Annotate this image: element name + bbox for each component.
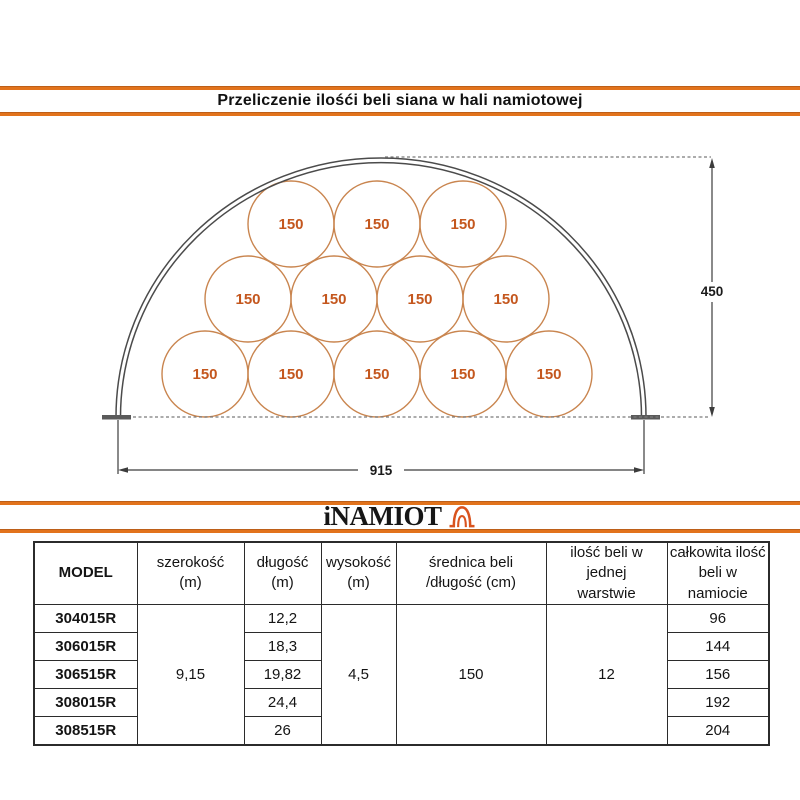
model-cell: 306515R: [34, 660, 137, 688]
header-model: MODEL: [34, 542, 137, 604]
total-bales-cell: 96: [667, 604, 769, 632]
height-dimension-label: 450: [701, 284, 724, 299]
header-length: długość(m): [244, 542, 321, 604]
length-cell: 24,4: [244, 688, 321, 716]
title-divider-bottom: [0, 112, 800, 116]
bale-label: 150: [321, 291, 346, 308]
bales-per-layer-cell: 12: [546, 604, 667, 745]
bale-label: 150: [235, 291, 260, 308]
dashed-reference-lines: [133, 157, 711, 417]
total-bales-cell: 204: [667, 716, 769, 745]
bale-label: 150: [407, 291, 432, 308]
title-divider-top: [0, 86, 800, 90]
length-cell: 12,2: [244, 604, 321, 632]
bale-label: 150: [364, 366, 389, 383]
logo-divider-bottom: [0, 529, 800, 533]
header-width: szerokość(m): [137, 542, 244, 604]
page: Przeliczenie ilośći beli siana w hali na…: [0, 0, 800, 800]
header-height: wysokość(m): [321, 542, 396, 604]
length-cell: 26: [244, 716, 321, 745]
model-spec-table: MODEL szerokość(m) długość(m) wysokość(m…: [33, 541, 770, 746]
bale-label: 150: [493, 291, 518, 308]
bale-label: 150: [278, 366, 303, 383]
table-row: 304015R 9,15 12,2 4,5 150 12 96: [34, 604, 769, 632]
model-cell: 306015R: [34, 632, 137, 660]
bale-label: 150: [192, 366, 217, 383]
total-bales-cell: 156: [667, 660, 769, 688]
bale-label: 150: [450, 216, 475, 233]
width-cell: 9,15: [137, 604, 244, 745]
left-foot-plate: [102, 415, 131, 420]
header-bale-diameter: średnica beli/długość (cm): [396, 542, 546, 604]
total-bales-cell: 144: [667, 632, 769, 660]
bale-label: 150: [278, 216, 303, 233]
page-title: Przeliczenie ilośći beli siana w hali na…: [0, 92, 800, 110]
model-cell: 304015R: [34, 604, 137, 632]
bale-label: 150: [536, 366, 561, 383]
model-cell: 308515R: [34, 716, 137, 745]
brand-logo-text: iNAMIOT: [324, 503, 442, 530]
height-cell: 4,5: [321, 604, 396, 745]
brand-logo: iNAMIOT: [0, 503, 800, 529]
model-cell: 308015R: [34, 688, 137, 716]
bale-diameter-cell: 150: [396, 604, 546, 745]
bale-label: 150: [450, 366, 475, 383]
header-bales-per-layer: ilość beli w jednejwarstwie: [546, 542, 667, 604]
bale-label: 150: [364, 216, 389, 233]
tent-cross-section-diagram: 150 150 150 150 150 150 150 150 150 150 …: [0, 130, 800, 490]
width-dimension-label: 915: [370, 463, 393, 478]
tent-arch-icon: [447, 504, 477, 529]
length-cell: 18,3: [244, 632, 321, 660]
header-total-bales: całkowita ilośćbeli w namiocie: [667, 542, 769, 604]
table-header-row: MODEL szerokość(m) długość(m) wysokość(m…: [34, 542, 769, 604]
height-dimension: [118, 164, 712, 474]
length-cell: 19,82: [244, 660, 321, 688]
total-bales-cell: 192: [667, 688, 769, 716]
